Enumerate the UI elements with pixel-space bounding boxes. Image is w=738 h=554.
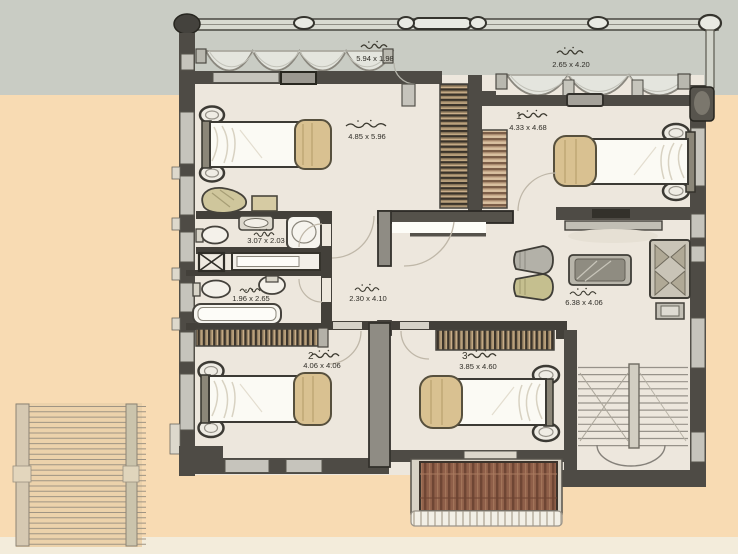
svg-text:3.07 x 2.03: 3.07 x 2.03 bbox=[247, 236, 285, 245]
svg-text:2.65 x 4.20: 2.65 x 4.20 bbox=[552, 60, 590, 69]
svg-text:1.96 x 2.65: 1.96 x 2.65 bbox=[232, 294, 270, 303]
svg-text:2.30 x 4.10: 2.30 x 4.10 bbox=[349, 294, 387, 303]
svg-text:3.85 x 4.60: 3.85 x 4.60 bbox=[459, 362, 497, 371]
svg-text:4.06 x 4.06: 4.06 x 4.06 bbox=[303, 361, 341, 370]
svg-text:4.85 x 5.96: 4.85 x 5.96 bbox=[348, 132, 386, 141]
svg-text:4.33 x 4.68: 4.33 x 4.68 bbox=[509, 123, 547, 132]
svg-text:5.94 x 1.98: 5.94 x 1.98 bbox=[356, 54, 394, 63]
svg-text:6.38 x 4.06: 6.38 x 4.06 bbox=[565, 298, 603, 307]
svg-text:1: 1 bbox=[516, 111, 522, 122]
svg-text:3: 3 bbox=[462, 351, 468, 362]
